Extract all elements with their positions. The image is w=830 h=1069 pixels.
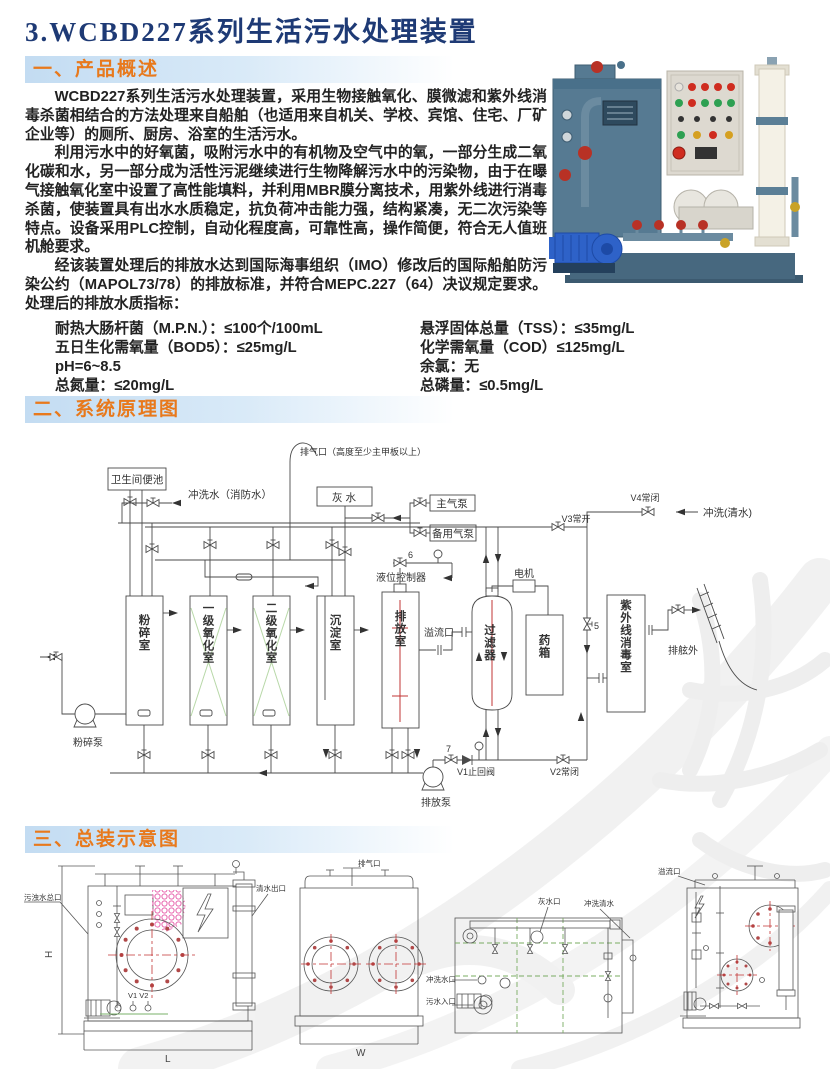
spec-line: 化学需氧量（COD）≤125mg/L <box>420 339 634 358</box>
tank5-label: 排放室 <box>394 609 407 648</box>
overflow-port-label: 溢流口 <box>658 866 681 876</box>
spec-line: 余氯：无 <box>420 358 634 377</box>
assembly-diagram: H <box>0 858 830 1069</box>
section-heading-schematic: 二、系统原理图 <box>25 396 513 423</box>
tank1-label: 粉碎室 <box>139 613 151 652</box>
flush-clean-label: 冲洗清水 <box>584 898 614 908</box>
overview-paragraph-2: 利用污水中的好氧菌，吸附污水中的有机物及空气中的氧，一部分生成二氧化碳和水，另一… <box>25 144 547 257</box>
clean-out-label: 清水出口 <box>256 883 286 893</box>
spec-line: 五日生化需氧量（BOD5）：≤25mg/L <box>55 339 323 358</box>
spec-line: 总氮量：≤20mg/L <box>55 377 323 396</box>
toilet-label: 卫生间便池 <box>111 473 164 486</box>
spec-column-right: 悬浮固体总量（TSS）：≤35mg/L 化学需氧量（COD）≤125mg/L 余… <box>420 320 634 396</box>
gray-water-label: 灰 水 <box>332 491 356 504</box>
check-valve-icon <box>462 755 472 765</box>
assembly-front-view: H <box>24 861 286 1066</box>
overview-paragraphs: WCBD227系列生活污水处理装置，采用生物接触氧化、膜微滤和紫外线消毒杀菌相结… <box>25 88 547 314</box>
flange-left <box>301 934 361 994</box>
gauge-icon <box>233 861 240 868</box>
sewage-in-label: 污水入口 <box>426 996 456 1006</box>
spec-line: 耐热大肠杆菌（M.P.N.）：≤100个/100mL <box>55 320 323 339</box>
flange-small-side <box>717 955 757 995</box>
uv-chamber-label: 紫外线消毒室 <box>619 598 632 674</box>
section-heading-assembly: 三、总装示意图 <box>25 826 513 853</box>
spec-line: pH=6~8.5 <box>55 358 323 377</box>
assembly-top-view: 灰水口 冲洗清水 冲洗水口 污水入口 <box>426 896 636 1033</box>
machine-tank <box>553 61 661 237</box>
tank3-label: 二级氧化室 <box>265 603 278 665</box>
schematic-diagram: 排气口（高度至少主甲板以上） 卫生间便池 冲洗水（消防水） <box>0 428 830 818</box>
motor-box <box>513 580 535 592</box>
flush-port-label: 冲洗水口 <box>426 974 456 984</box>
product-photo <box>545 57 830 295</box>
flush-fire-label: 冲洗水（消防水） <box>188 488 272 501</box>
membrane-column <box>755 57 789 246</box>
tank2-label: 一级氧化室 <box>202 603 215 665</box>
spec-line: 总磷量：≤0.5mg/L <box>420 377 634 396</box>
vent-label: 排气口（高度至少主甲板以上） <box>300 446 426 457</box>
flush-clean-label: 冲洗(清水) <box>703 506 752 519</box>
v1v2-label: V1 V2 <box>128 991 148 1000</box>
feed-pump <box>549 233 622 273</box>
v2-label: V2常闭 <box>550 766 579 777</box>
sewage-inlet-circle <box>474 996 492 1014</box>
level-controller-label: 液位控制器 <box>376 571 426 584</box>
flush-port-circle <box>478 976 486 984</box>
air-compressor <box>674 190 753 229</box>
spec-column-left: 耐热大肠杆菌（M.P.N.）：≤100个/100mL 五日生化需氧量（BOD5）… <box>55 320 323 396</box>
v4-label: V4常闭 <box>630 492 659 503</box>
electric-panel <box>183 888 228 938</box>
ship-side-hatching <box>697 584 757 690</box>
honeycomb-media <box>152 890 186 932</box>
overview-paragraph-3: 经该装置处理后的排放水达到国际海事组织（IMO）修改后的国际船舶防污染公约（MA… <box>25 257 547 313</box>
dim-l-label: L <box>165 1054 171 1065</box>
crush-pump-label: 粉碎泵 <box>73 736 103 749</box>
spec-line: 悬浮固体总量（TSS）：≤35mg/L <box>420 320 634 339</box>
page-title: 3.WCBD227系列生活污水处理装置 <box>25 10 478 49</box>
catalog-page: 3.WCBD227系列生活污水处理装置 一、产品概述 WCBD227系列生活污水… <box>0 0 830 1069</box>
lightning-icon <box>197 894 213 932</box>
overview-paragraph-1: WCBD227系列生活污水处理装置，采用生物接触氧化、膜微滤和紫外线消毒杀菌相结… <box>25 88 547 144</box>
flange-right <box>366 934 426 994</box>
num6-label: 6 <box>408 550 413 560</box>
chem-tank-label: 药箱 <box>539 633 551 659</box>
discharge-pump-label: 排放泵 <box>421 796 451 809</box>
overboard-label: 排舷外 <box>668 644 698 657</box>
section-heading-overview: 一、产品概述 <box>25 56 513 83</box>
membrane-column-drawing <box>233 872 255 1010</box>
emergency-stop-button <box>673 147 685 159</box>
overflow-label: 溢流口 <box>424 626 454 639</box>
assembly-front-view-2: 排气口 <box>295 858 426 1059</box>
inlet-main-label: 污浊水总口 <box>24 892 62 902</box>
assembly-side-view: 溢流口 <box>658 866 800 1028</box>
num5-label: 5 <box>594 621 599 631</box>
num7-label: 7 <box>446 744 451 754</box>
crush-pump <box>74 704 96 727</box>
discharge-pump <box>422 767 444 790</box>
control-panel <box>667 71 743 175</box>
backup-air-pump-label: 备用气泵 <box>432 527 474 540</box>
tank4-label: 沉淀室 <box>330 613 342 652</box>
gray-port-label: 灰水口 <box>538 896 561 906</box>
v3-label: V3常开 <box>561 513 590 524</box>
gray-water-port-circle <box>531 931 543 943</box>
v1-label: V1止回阀 <box>457 766 495 777</box>
vent-port-label: 排气口 <box>358 858 381 868</box>
motor-label: 电机 <box>514 567 534 580</box>
dim-h-label: H <box>44 951 55 958</box>
nameplate <box>125 895 153 915</box>
main-air-pump-label: 主气泵 <box>436 497 468 510</box>
dim-w-label: W <box>356 1048 366 1059</box>
filter-label: 过滤器 <box>483 623 496 662</box>
